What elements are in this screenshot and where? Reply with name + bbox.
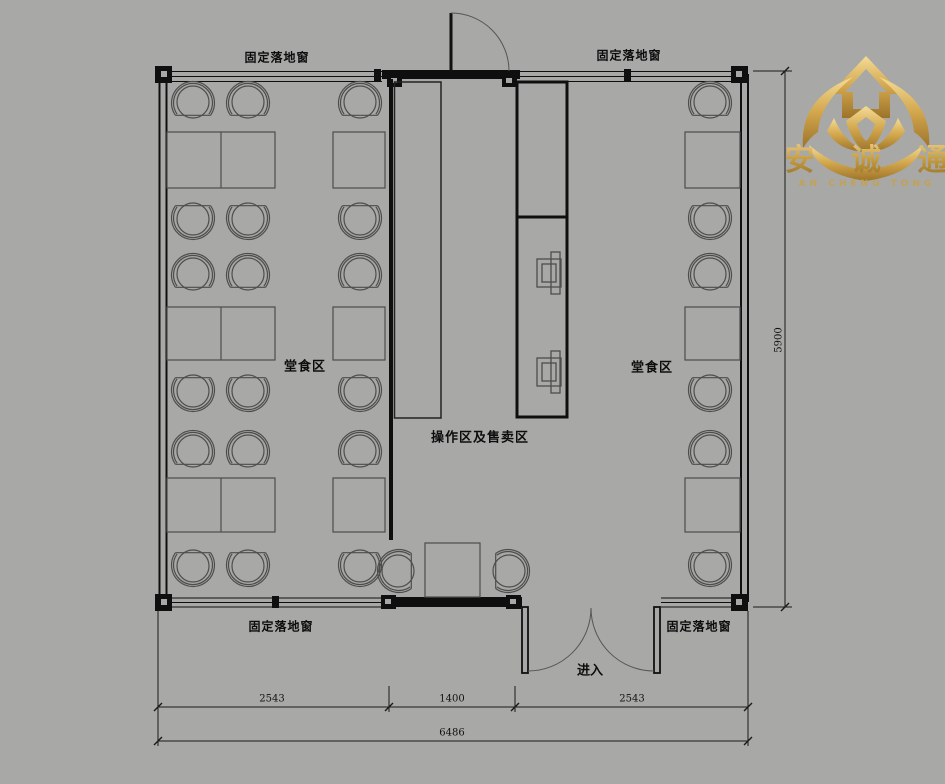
- top-solid-wall: [382, 70, 520, 79]
- floor-plan-drawing: [0, 0, 945, 784]
- exterior-walls: [155, 66, 748, 611]
- table-center-left-1: [333, 132, 385, 188]
- left-wall: [160, 74, 167, 602]
- table-left-3: [167, 478, 275, 532]
- equipment-2: [537, 351, 561, 393]
- dining-area-label-left: 堂食区: [284, 356, 326, 375]
- dim-bottom-center: 1400: [439, 694, 464, 705]
- dim-bottom-right: 2543: [619, 694, 644, 705]
- operation-area: [391, 79, 567, 540]
- dim-bottom-total: 6486: [439, 728, 464, 739]
- table-left-2: [167, 307, 275, 360]
- table-right-2: [685, 307, 740, 360]
- dim-bottom-left: 2543: [259, 694, 284, 705]
- window-label-top-left: 固定落地窗: [244, 49, 309, 66]
- logo-company-name-en: AN CHENG TONG: [799, 179, 936, 189]
- entry-label: 进入: [577, 660, 603, 679]
- right-wall: [741, 74, 748, 602]
- table-bottom-center: [425, 543, 480, 597]
- top-door: [451, 13, 509, 71]
- dining-area-label-right: 堂食区: [631, 357, 673, 376]
- table-center-left-3: [333, 478, 385, 532]
- window-mullions: [272, 69, 631, 608]
- bottom-solid-wall: [381, 597, 522, 607]
- work-counter: [395, 82, 442, 418]
- equipment-1: [537, 252, 561, 294]
- window-label-bottom-left: 固定落地窗: [248, 618, 313, 635]
- chairs: [172, 81, 732, 592]
- table-center-left-2: [333, 307, 385, 360]
- table-left-1: [167, 132, 275, 188]
- logo-company-name-cn: 安 诚 通: [772, 135, 945, 179]
- table-right-1: [685, 132, 740, 188]
- operation-area-label: 操作区及售卖区: [431, 427, 529, 446]
- wall-pillars: [155, 66, 748, 611]
- dim-side-height: 5900: [774, 327, 785, 352]
- table-right-3: [685, 478, 740, 532]
- floor-plan-sheet: 固定落地窗 固定落地窗 固定落地窗 固定落地窗 堂食区 堂食区 操作区及售卖区 …: [0, 0, 945, 784]
- window-label-bottom-right: 固定落地窗: [666, 618, 731, 635]
- window-label-top-right: 固定落地窗: [596, 47, 661, 64]
